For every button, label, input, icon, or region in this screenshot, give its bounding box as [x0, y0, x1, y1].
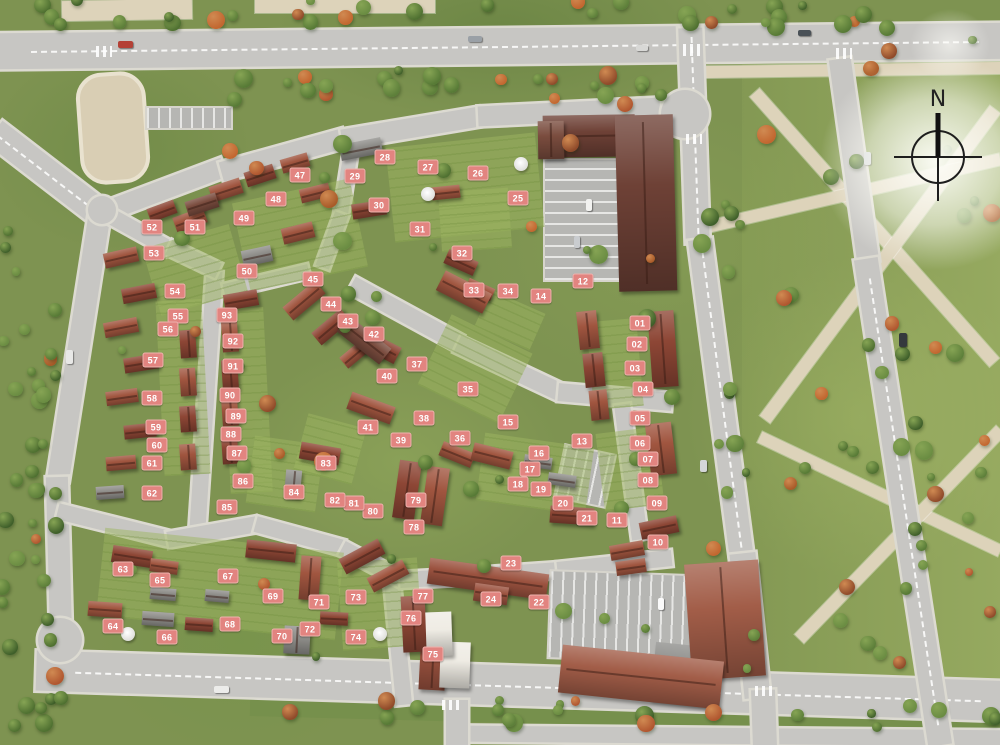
lot-marker-75[interactable]: 75 [423, 647, 444, 662]
lot-marker-52[interactable]: 52 [142, 220, 163, 235]
lot-marker-47[interactable]: 47 [290, 168, 311, 183]
lot-marker-39[interactable]: 39 [391, 433, 412, 448]
lot-marker-44[interactable]: 44 [321, 297, 342, 312]
lot-marker-60[interactable]: 60 [147, 438, 168, 453]
lot-marker-09[interactable]: 09 [647, 496, 668, 511]
lot-marker-08[interactable]: 08 [638, 473, 659, 488]
lot-marker-62[interactable]: 62 [142, 486, 163, 501]
lot-marker-26[interactable]: 26 [468, 166, 489, 181]
lot-marker-74[interactable]: 74 [346, 630, 367, 645]
lot-marker-79[interactable]: 79 [406, 493, 427, 508]
lot-marker-14[interactable]: 14 [531, 289, 552, 304]
lot-marker-63[interactable]: 63 [113, 562, 134, 577]
lot-marker-04[interactable]: 04 [633, 382, 654, 397]
lot-marker-27[interactable]: 27 [418, 160, 439, 175]
lot-marker-20[interactable]: 20 [553, 496, 574, 511]
lot-marker-16[interactable]: 16 [529, 446, 550, 461]
lot-marker-76[interactable]: 76 [401, 611, 422, 626]
lot-marker-45[interactable]: 45 [303, 272, 324, 287]
lot-marker-77[interactable]: 77 [413, 589, 434, 604]
lot-marker-30[interactable]: 30 [369, 198, 390, 213]
lot-marker-10[interactable]: 10 [648, 535, 669, 550]
lot-marker-11[interactable]: 11 [607, 513, 628, 528]
lot-marker-59[interactable]: 59 [146, 420, 167, 435]
lot-marker-51[interactable]: 51 [185, 220, 206, 235]
lot-marker-68[interactable]: 68 [220, 617, 241, 632]
lot-marker-80[interactable]: 80 [363, 504, 384, 519]
lot-marker-58[interactable]: 58 [142, 391, 163, 406]
lot-marker-40[interactable]: 40 [377, 369, 398, 384]
lot-marker-61[interactable]: 61 [142, 456, 163, 471]
compass-north-needle [936, 113, 941, 157]
lot-marker-34[interactable]: 34 [498, 284, 519, 299]
lot-marker-36[interactable]: 36 [450, 431, 471, 446]
lot-marker-66[interactable]: 66 [157, 630, 178, 645]
lot-marker-29[interactable]: 29 [345, 169, 366, 184]
lot-marker-19[interactable]: 19 [531, 482, 552, 497]
lot-marker-31[interactable]: 31 [410, 222, 431, 237]
lot-marker-12[interactable]: 12 [573, 274, 594, 289]
lot-marker-48[interactable]: 48 [266, 192, 287, 207]
lot-marker-17[interactable]: 17 [520, 462, 541, 477]
lot-marker-23[interactable]: 23 [501, 556, 522, 571]
lot-marker-21[interactable]: 21 [577, 511, 598, 526]
lot-marker-49[interactable]: 49 [234, 211, 255, 226]
lot-marker-84[interactable]: 84 [284, 485, 305, 500]
lot-marker-69[interactable]: 69 [263, 589, 284, 604]
lot-markers-layer: 0102030405060708091011121314151617181920… [0, 0, 1000, 745]
lot-marker-18[interactable]: 18 [508, 477, 529, 492]
lot-marker-87[interactable]: 87 [227, 446, 248, 461]
lot-marker-81[interactable]: 81 [344, 496, 365, 511]
lot-marker-13[interactable]: 13 [572, 434, 593, 449]
lot-marker-64[interactable]: 64 [103, 619, 124, 634]
lot-marker-54[interactable]: 54 [165, 284, 186, 299]
lot-marker-71[interactable]: 71 [309, 595, 330, 610]
lot-marker-03[interactable]: 03 [625, 361, 646, 376]
lot-marker-07[interactable]: 07 [638, 452, 659, 467]
lot-marker-73[interactable]: 73 [346, 590, 367, 605]
masterplan-canvas: 0102030405060708091011121314151617181920… [0, 0, 1000, 745]
lot-marker-25[interactable]: 25 [508, 191, 529, 206]
lot-marker-35[interactable]: 35 [458, 382, 479, 397]
lot-marker-83[interactable]: 83 [316, 456, 337, 471]
lot-marker-42[interactable]: 42 [364, 327, 385, 342]
lot-marker-24[interactable]: 24 [481, 592, 502, 607]
lot-marker-88[interactable]: 88 [221, 427, 242, 442]
lot-marker-65[interactable]: 65 [150, 573, 171, 588]
lot-marker-70[interactable]: 70 [272, 629, 293, 644]
lot-marker-91[interactable]: 91 [223, 359, 244, 374]
lot-marker-33[interactable]: 33 [464, 283, 485, 298]
lot-marker-85[interactable]: 85 [217, 500, 238, 515]
lot-marker-93[interactable]: 93 [217, 308, 238, 323]
lot-marker-89[interactable]: 89 [226, 409, 247, 424]
lot-marker-53[interactable]: 53 [144, 246, 165, 261]
lot-marker-22[interactable]: 22 [529, 595, 550, 610]
lot-marker-41[interactable]: 41 [358, 420, 379, 435]
lot-marker-01[interactable]: 01 [630, 316, 651, 331]
compass-north-label: N [930, 87, 946, 112]
lot-marker-67[interactable]: 67 [218, 569, 239, 584]
lot-marker-43[interactable]: 43 [338, 314, 359, 329]
lot-marker-90[interactable]: 90 [220, 388, 241, 403]
lot-marker-06[interactable]: 06 [630, 436, 651, 451]
lot-marker-50[interactable]: 50 [237, 264, 258, 279]
lot-marker-86[interactable]: 86 [233, 474, 254, 489]
lot-marker-56[interactable]: 56 [158, 322, 179, 337]
lot-marker-05[interactable]: 05 [630, 411, 651, 426]
lot-marker-78[interactable]: 78 [404, 520, 425, 535]
lot-marker-02[interactable]: 02 [627, 337, 648, 352]
lot-marker-28[interactable]: 28 [375, 150, 396, 165]
lot-marker-15[interactable]: 15 [498, 415, 519, 430]
lot-marker-38[interactable]: 38 [414, 411, 435, 426]
lot-marker-57[interactable]: 57 [143, 353, 164, 368]
lot-marker-32[interactable]: 32 [452, 246, 473, 261]
lot-marker-72[interactable]: 72 [300, 622, 321, 637]
lot-marker-82[interactable]: 82 [325, 493, 346, 508]
lot-marker-37[interactable]: 37 [407, 357, 428, 372]
lot-marker-92[interactable]: 92 [223, 334, 244, 349]
